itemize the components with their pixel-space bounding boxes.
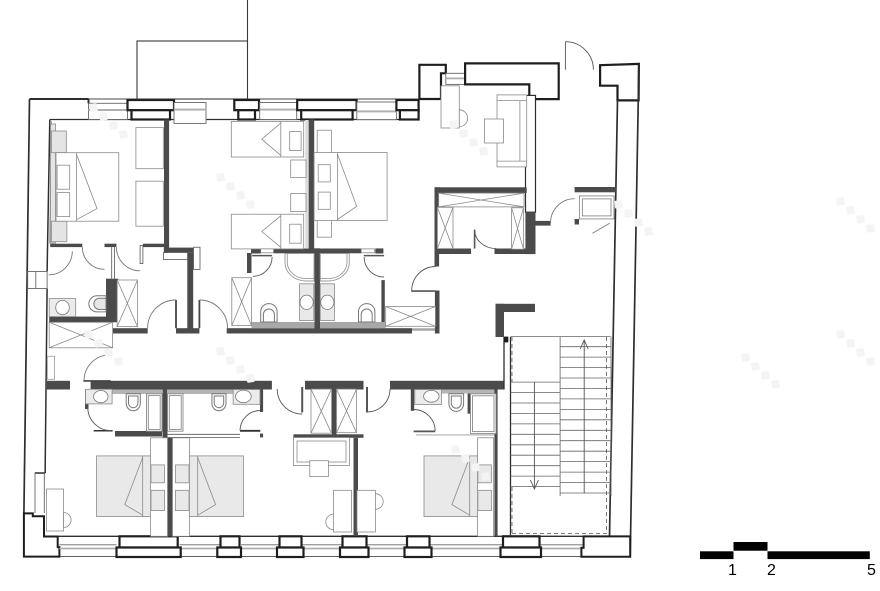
svg-text:1: 1 xyxy=(728,562,737,579)
svg-text:5: 5 xyxy=(867,562,876,579)
svg-text:2: 2 xyxy=(767,562,776,579)
